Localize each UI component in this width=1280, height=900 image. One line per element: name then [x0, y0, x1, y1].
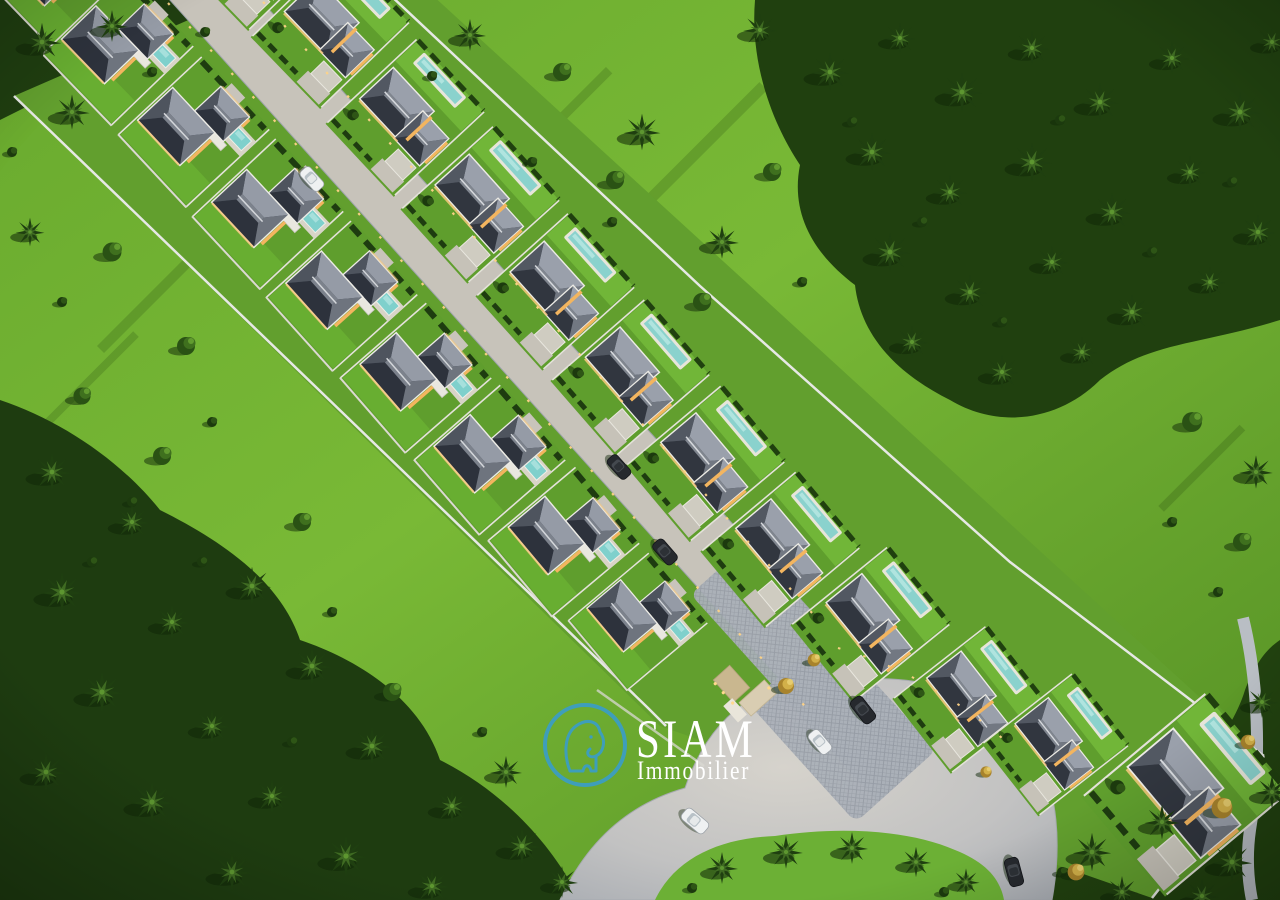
render-canvas: SIAM Immobilier: [0, 0, 1280, 900]
brand-subtitle: Immobilier: [637, 756, 750, 785]
aerial-render: SIAM Immobilier: [0, 0, 1280, 900]
